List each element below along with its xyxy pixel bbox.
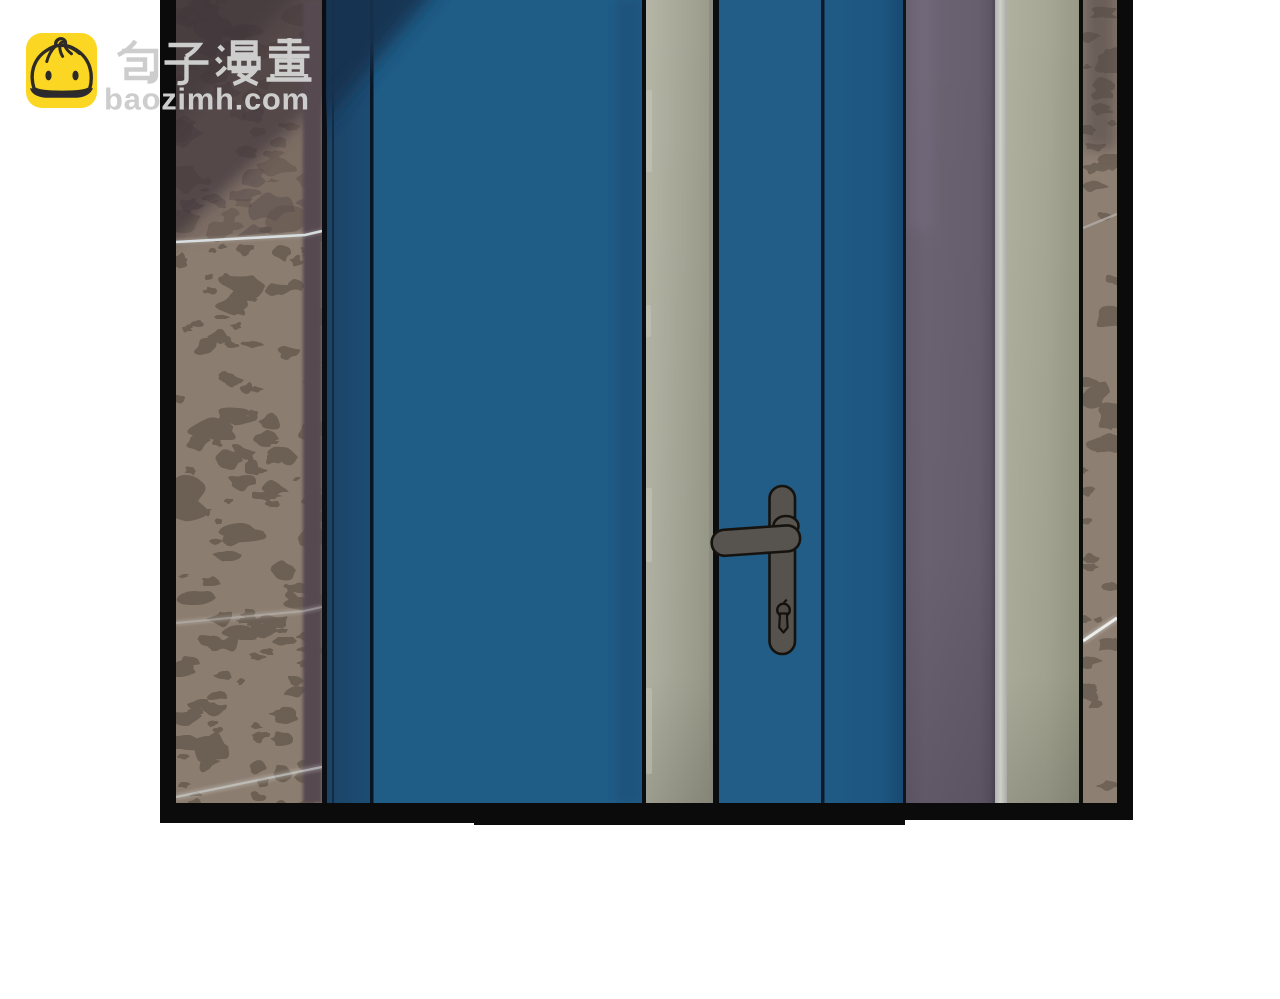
svg-text:baozimh.com: baozimh.com bbox=[104, 82, 310, 117]
